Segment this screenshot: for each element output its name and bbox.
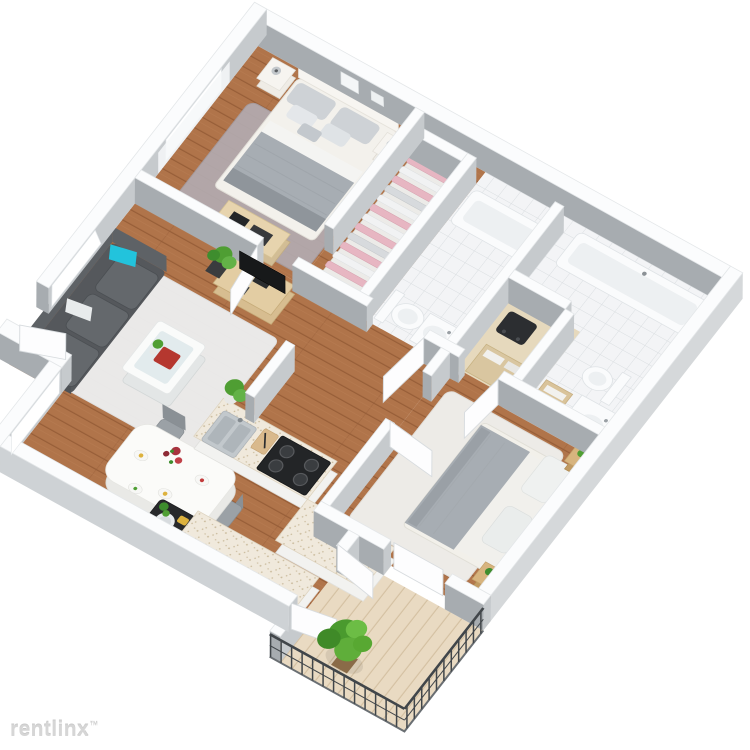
rentlinx-watermark: rentlinx™ [10,718,98,742]
watermark-brand: rentlinx [10,718,89,741]
watermark-trademark: ™ [89,720,98,730]
floor-plan-image: rentlinx™ [0,0,750,750]
floor-plan-svg [0,0,750,750]
